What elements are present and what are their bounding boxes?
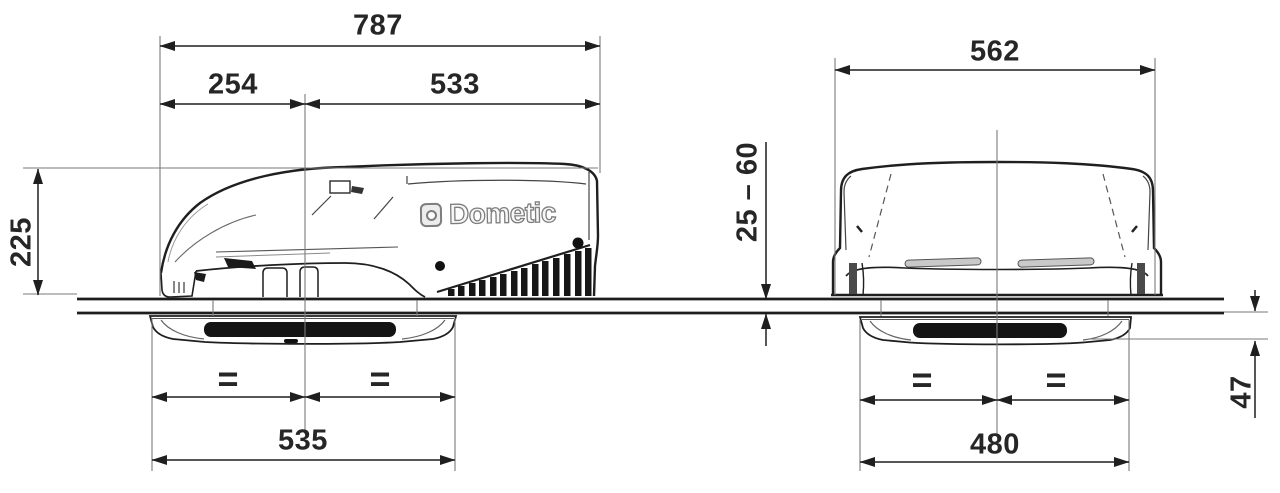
line-art (0, 0, 1280, 493)
dim-label-overall-length: 787 (353, 10, 403, 43)
dim-label-front-to-center: 254 (208, 69, 258, 102)
equals-mark: = (1045, 359, 1066, 401)
technical-drawing-canvas: 787 254 533 225 535 562 25 – 60 480 47 =… (0, 0, 1280, 493)
equals-mark: = (217, 358, 238, 400)
dim-label-interior-width: 480 (970, 429, 1020, 462)
dim-label-interior-length: 535 (278, 425, 328, 458)
dometic-logo: Dometic (420, 197, 557, 231)
dim-label-interior-depth: 47 (1226, 375, 1259, 408)
equals-mark: = (369, 358, 390, 400)
dim-label-center-to-rear: 533 (430, 69, 480, 102)
interior-air-distributor-side (150, 316, 456, 344)
interior-air-distributor-front (860, 317, 1131, 344)
side-view-unit (161, 163, 598, 297)
dometic-wave-icon (420, 203, 442, 227)
dim-label-height: 225 (6, 217, 39, 267)
dometic-wordmark: Dometic (449, 197, 557, 231)
dim-label-overall-width: 562 (970, 36, 1020, 69)
roof-lines (77, 299, 1224, 313)
dim-label-roof-thickness: 25 – 60 (732, 142, 765, 242)
equals-mark: = (911, 359, 932, 401)
